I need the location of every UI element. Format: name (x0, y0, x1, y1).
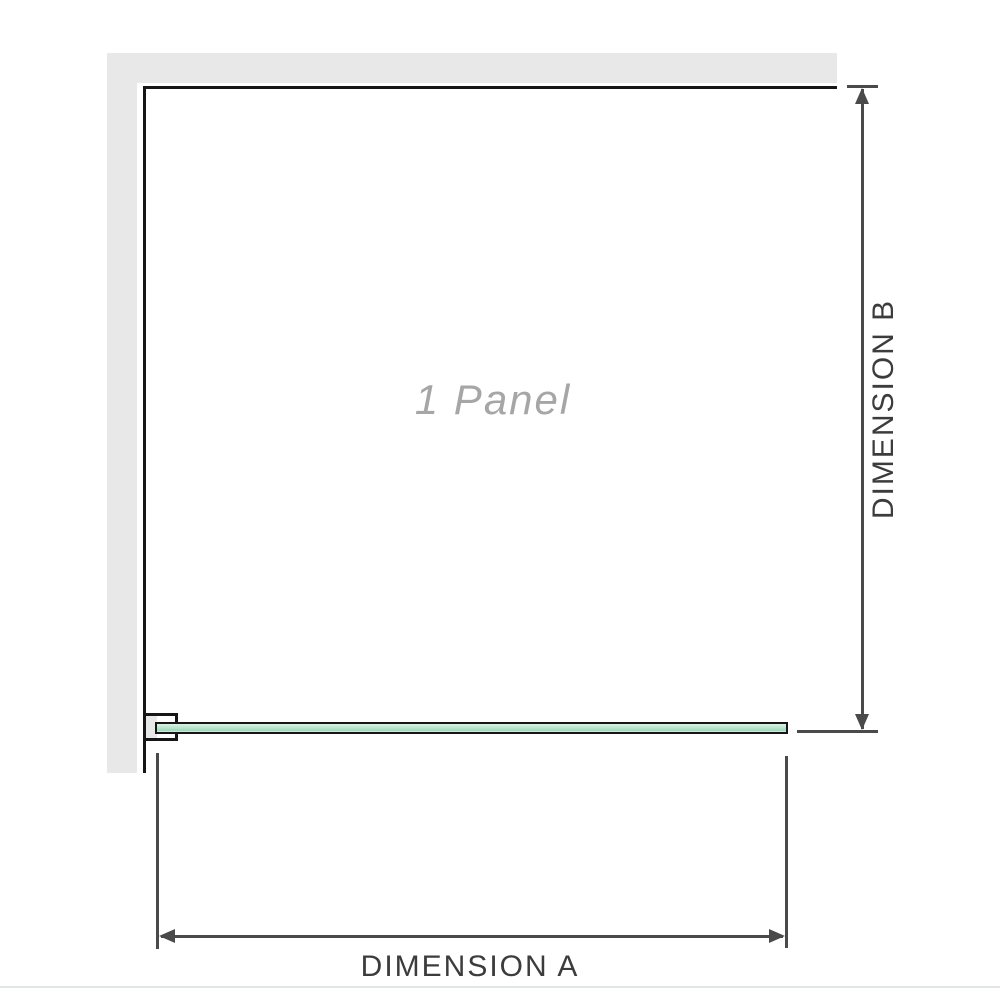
dim-b-arrow-up-icon (855, 88, 869, 104)
dim-b-label: DIMENSION B (867, 299, 901, 519)
dim-a-arrow-right-icon (769, 929, 785, 943)
dim-a-line (161, 935, 783, 938)
dim-a-ext-left (156, 753, 159, 949)
panel-label: 1 Panel (415, 376, 571, 424)
dim-a-label: DIMENSION A (361, 950, 580, 984)
wall-top-bar (107, 53, 837, 83)
wall-left-bar (107, 53, 137, 773)
baseline-divider (0, 986, 1000, 988)
glass-panel (155, 722, 788, 734)
dim-b-line (861, 89, 864, 729)
dim-a-ext-right (785, 756, 788, 948)
dim-a-arrow-left-icon (159, 929, 175, 943)
dim-b-arrow-down-icon (855, 714, 869, 730)
shower-panel-diagram: 1 Panel DIMENSION B DIMENSION A (0, 0, 1000, 1000)
panel-outline-top (143, 86, 837, 89)
panel-outline-left (143, 86, 146, 773)
dim-b-tick-bottom (797, 730, 878, 733)
